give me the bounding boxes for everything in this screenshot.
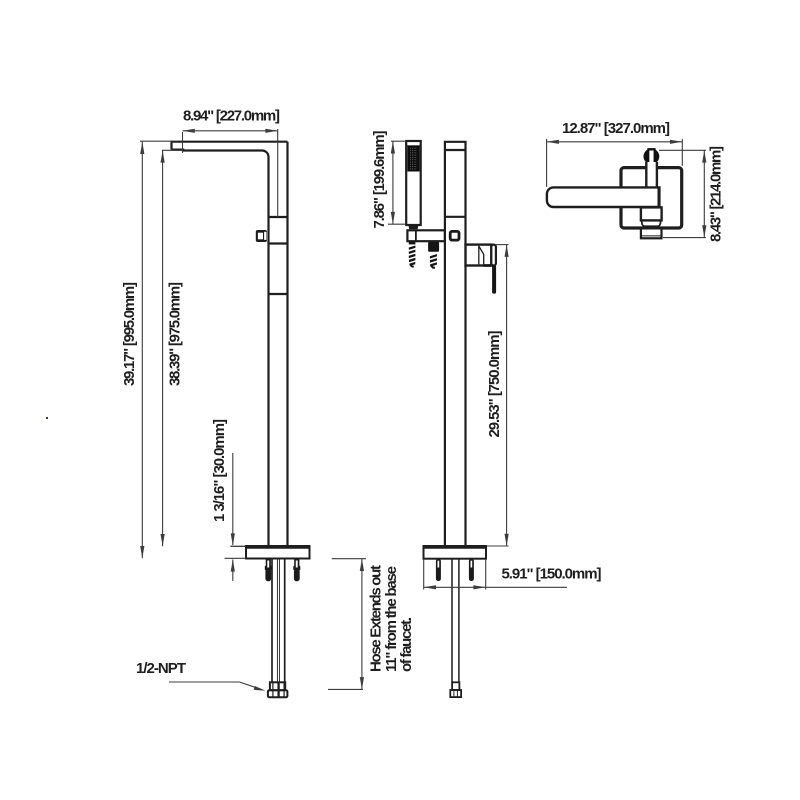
svg-text:of faucet.: of faucet.	[398, 617, 415, 672]
svg-text:29.53" [750.0mm]: 29.53" [750.0mm]	[486, 331, 503, 438]
svg-text:8.43" [214.0mm]: 8.43" [214.0mm]	[708, 146, 725, 242]
svg-text:5.91" [150.0mm]: 5.91" [150.0mm]	[502, 565, 602, 582]
svg-text:1 3/16" [30.0mm]: 1 3/16" [30.0mm]	[211, 419, 228, 522]
svg-text:38.39" [975.0mm]: 38.39" [975.0mm]	[167, 282, 184, 386]
svg-text:1/2-NPT: 1/2-NPT	[136, 660, 186, 677]
svg-text:12.87" [327.0mm]: 12.87" [327.0mm]	[562, 120, 670, 137]
svg-text:7.86" [199.6mm]: 7.86" [199.6mm]	[371, 131, 388, 229]
svg-text:39.17" [995.0mm]: 39.17" [995.0mm]	[121, 282, 138, 386]
svg-text:8.94" [227.0mm]: 8.94" [227.0mm]	[183, 107, 280, 124]
